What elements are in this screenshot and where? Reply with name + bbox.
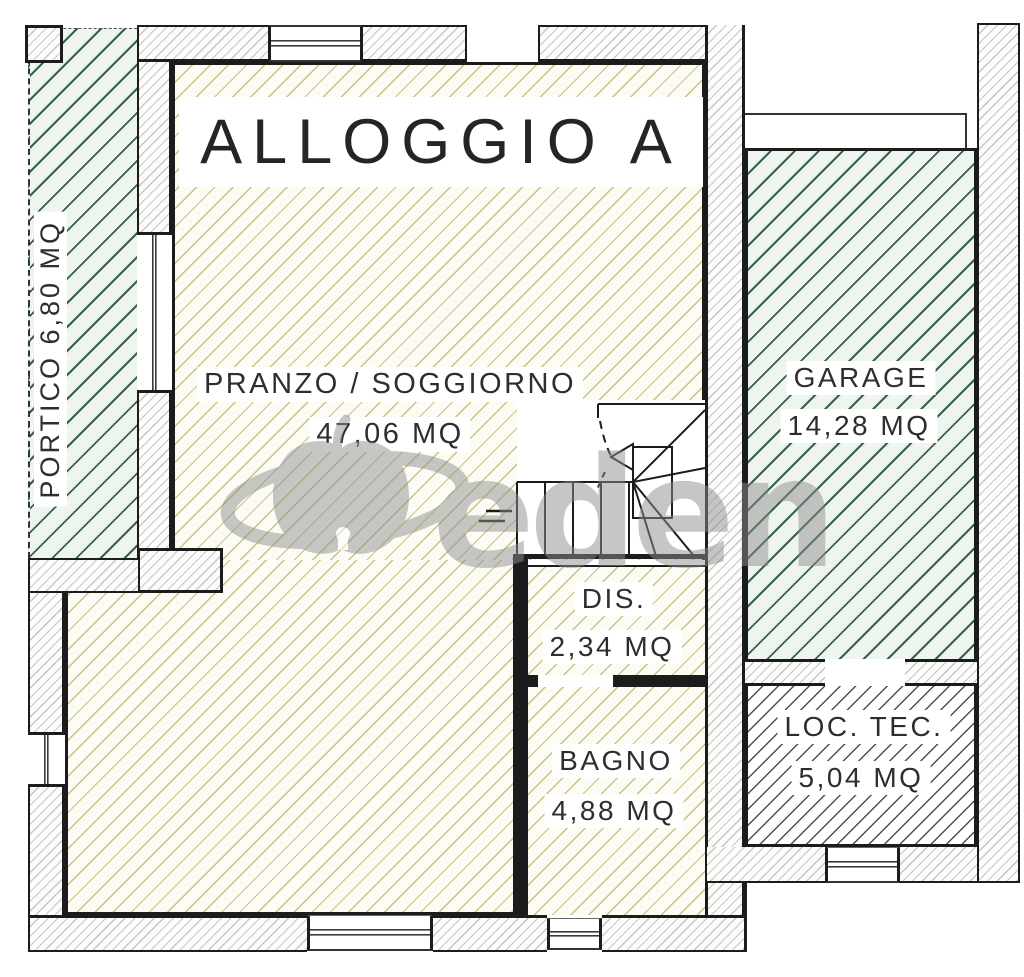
door-opening-entry [467,25,538,62]
window-loctec [825,847,900,883]
wall-bottom-b [433,915,547,952]
label-garage-area: 14,28 MQ [781,409,938,443]
wall-left-b [28,787,65,915]
label-loctec-name: LOC. TEC. [778,710,951,744]
label-pranzo-area: 47,06 MQ [309,417,470,452]
wall-right-house [705,25,745,915]
door-opening-bagno [538,675,613,687]
label-bagno-name: BAGNO [552,744,680,778]
room-garage [745,148,977,662]
label-pranzo-name: PRANZO / SOGGIORNO [197,367,583,402]
wall-partition-left [513,554,528,915]
page-title: ALLOGGIO A [179,97,703,187]
wall-step-block [137,548,223,593]
wall-bottom-a [28,915,307,952]
label-dis-name: DIS. [575,582,653,616]
window-top [268,25,363,62]
wall-edge-bottom-right [744,883,747,952]
label-loctec-area: 5,04 MQ [792,761,931,795]
wall-stairs-base [513,554,707,559]
wall-portico-base [28,558,140,593]
room-pranzo-lower [65,560,520,915]
wall-top-b [363,25,467,62]
window-portico [137,232,172,393]
garage-door [745,113,967,148]
window-left [28,732,65,787]
wall-bottom-c [602,915,747,952]
pillar-top-left [25,25,63,63]
window-bottom-1 [307,915,433,951]
wall-right-boundary [977,23,1020,883]
door-opening-loctec [825,659,905,686]
label-garage-name: GARAGE [787,361,936,395]
wall-portico-b [137,393,172,548]
floor-plan: ALLOGGIO A PORTICO 6,80 MQ PRANZO / SOGG… [0,0,1024,977]
window-bottom-2 [547,918,602,950]
staircase-area [517,400,707,558]
wall-portico-a [137,62,172,232]
label-dis-area: 2,34 MQ [543,630,682,664]
label-portico: PORTICO 6,80 MQ [34,212,67,507]
wall-left-a [28,593,65,732]
wall-top-a [137,25,268,62]
label-bagno-area: 4,88 MQ [545,794,684,828]
